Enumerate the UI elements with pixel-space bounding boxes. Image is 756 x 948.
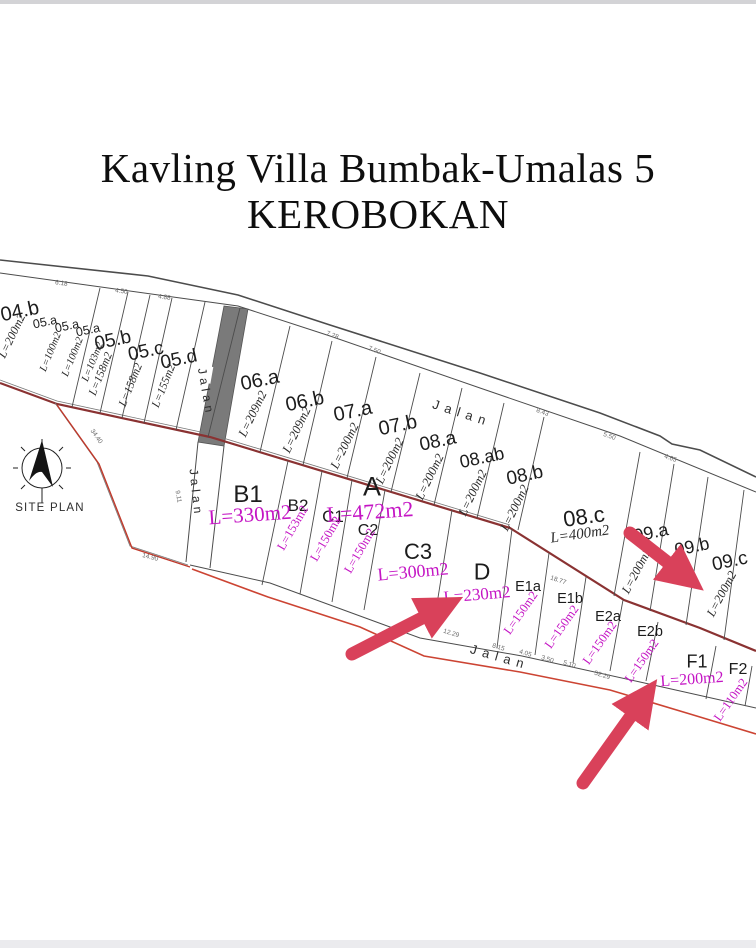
arrow-to-plot-d: [352, 616, 426, 654]
arrow-to-plot-09b: [630, 533, 671, 565]
site-plan-map: 04.b 05.a 05.a 05.a 05.b 05.c 05.d 06.a …: [0, 0, 756, 948]
annotation-arrows: [0, 0, 756, 948]
arrow-to-plot-f1: [583, 713, 633, 783]
